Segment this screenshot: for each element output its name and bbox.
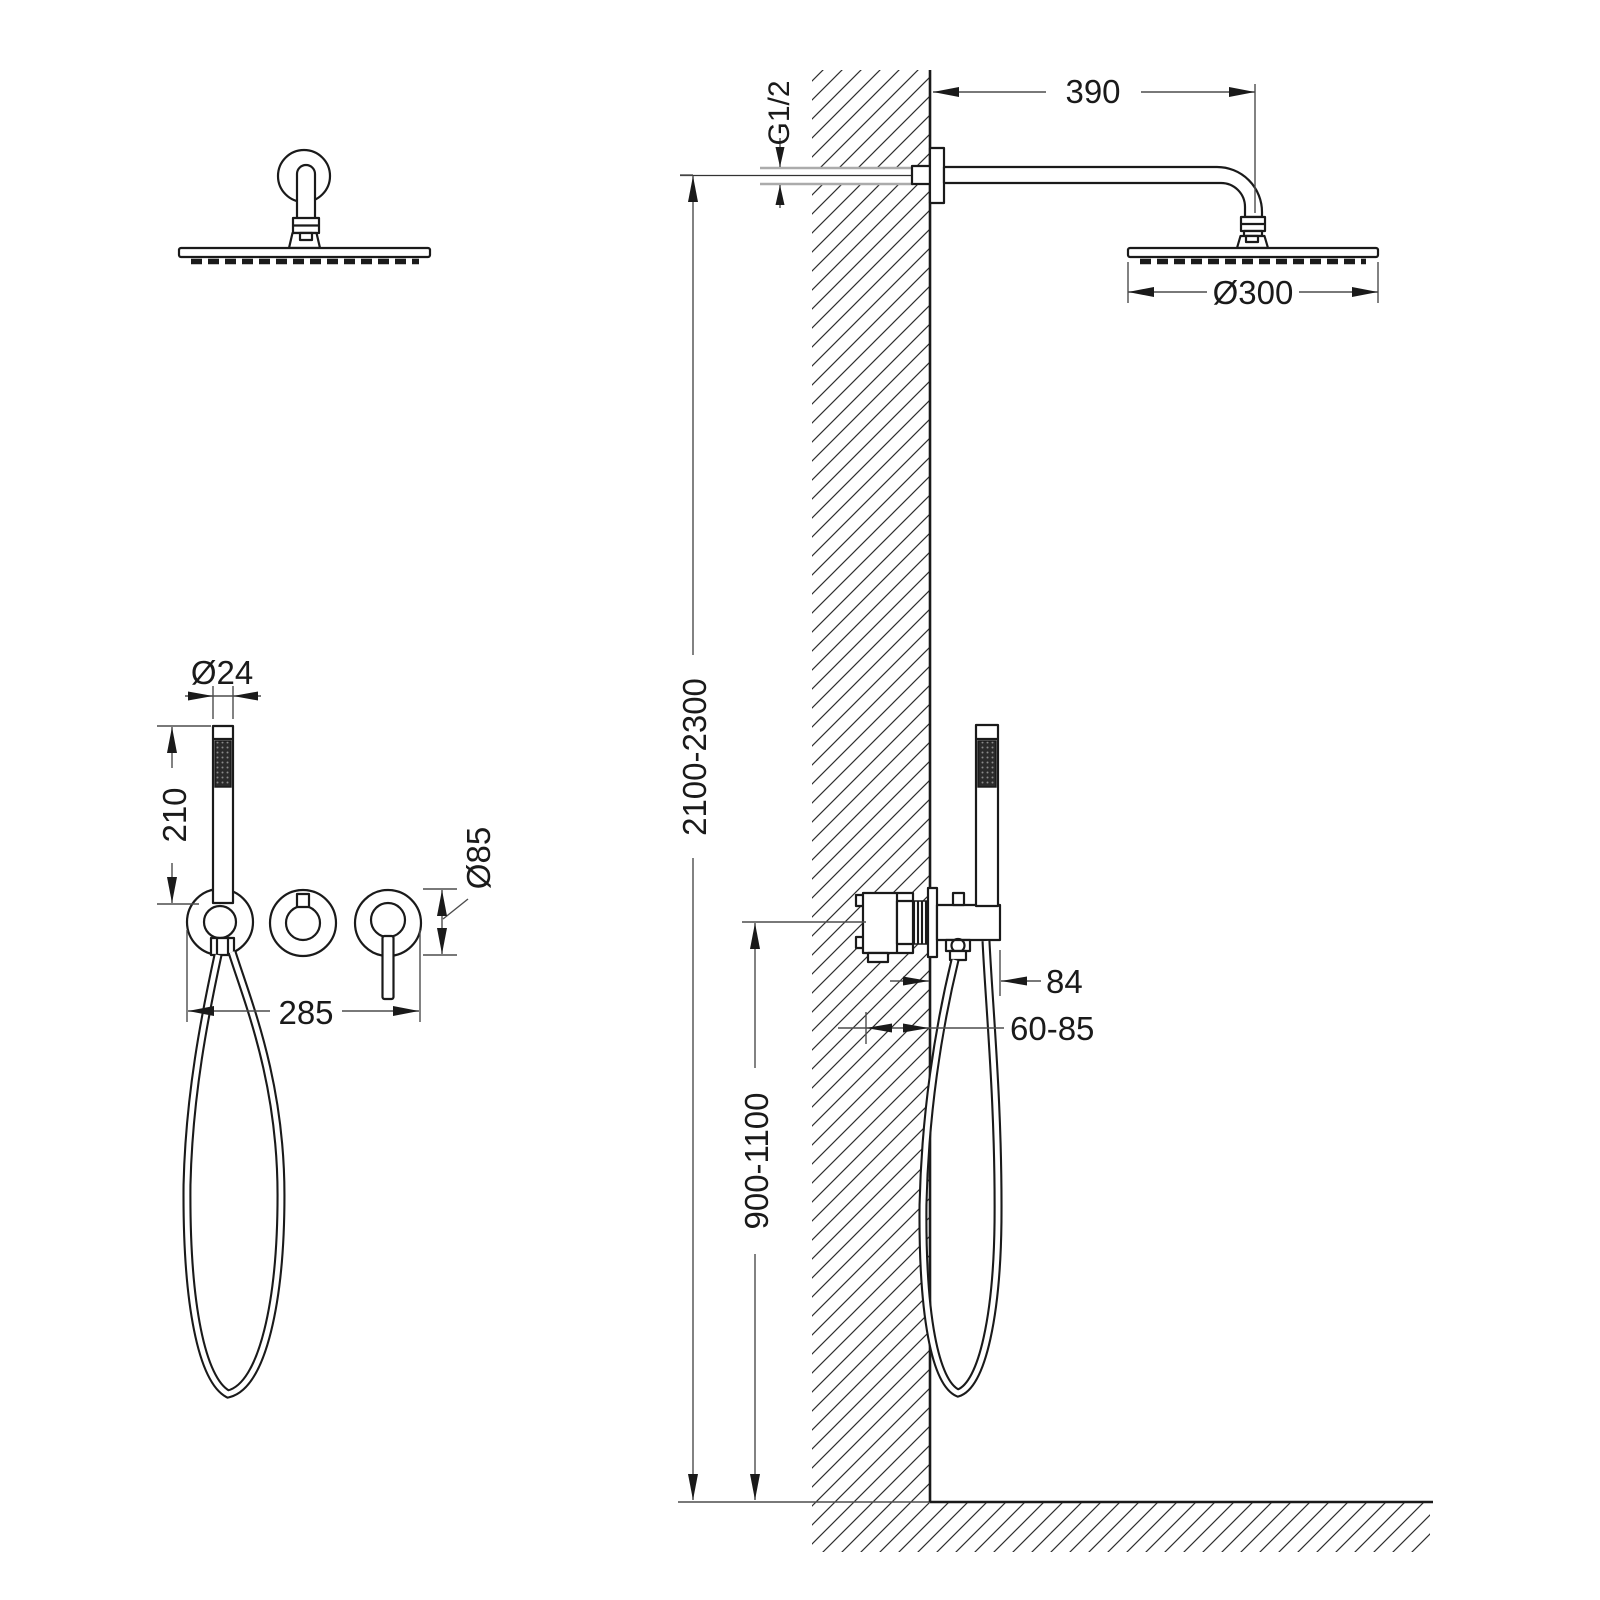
mixer-ring (371, 903, 405, 937)
pipe-stub (912, 166, 930, 184)
dim-holder-projection-label: 84 (1046, 963, 1083, 1000)
diverter-ring (286, 906, 320, 940)
diverter-knob (297, 894, 309, 907)
dim-trim-diameter-label: Ø85 (460, 827, 497, 889)
dim-head-diameter-label: Ø300 (1213, 274, 1294, 311)
dim-valve-height-label: 900-1100 (738, 1092, 775, 1229)
technical-drawing: 390 G1/2 Ø300 2100-2300 (0, 0, 1600, 1600)
dim-install-height-label: 2100-2300 (676, 678, 713, 836)
hose-nut-side (946, 940, 970, 951)
mixer-lever (383, 936, 394, 999)
holder-ring (204, 906, 236, 938)
dim-rough-in-depth-label: 60-85 (1010, 1010, 1094, 1047)
shower-head-plate-side (1128, 248, 1378, 257)
valve-bottom-tab (868, 953, 888, 962)
background (0, 0, 1600, 1600)
shower-head-plate-front (179, 248, 430, 257)
dim-wand-diameter-label: Ø24 (191, 654, 253, 691)
dim-inlet-thread-label: G1/2 (763, 80, 796, 145)
dim-wand-length-label: 210 (156, 787, 193, 842)
dim-arm-length-label: 390 (1065, 73, 1120, 110)
holder-body-side (937, 905, 1000, 940)
dim-trim-width-label: 285 (278, 994, 333, 1031)
wand-texture-front (215, 741, 231, 787)
wall-flange-side (930, 148, 944, 203)
drawing-canvas: 390 G1/2 Ø300 2100-2300 (0, 0, 1600, 1600)
hand-shower-side (976, 725, 998, 906)
wand-texture-side (978, 741, 996, 787)
holder-top-tab (953, 893, 964, 905)
shower-arm-front (297, 165, 315, 218)
hose-connector-front (211, 938, 234, 955)
escutcheon-side (928, 888, 937, 957)
